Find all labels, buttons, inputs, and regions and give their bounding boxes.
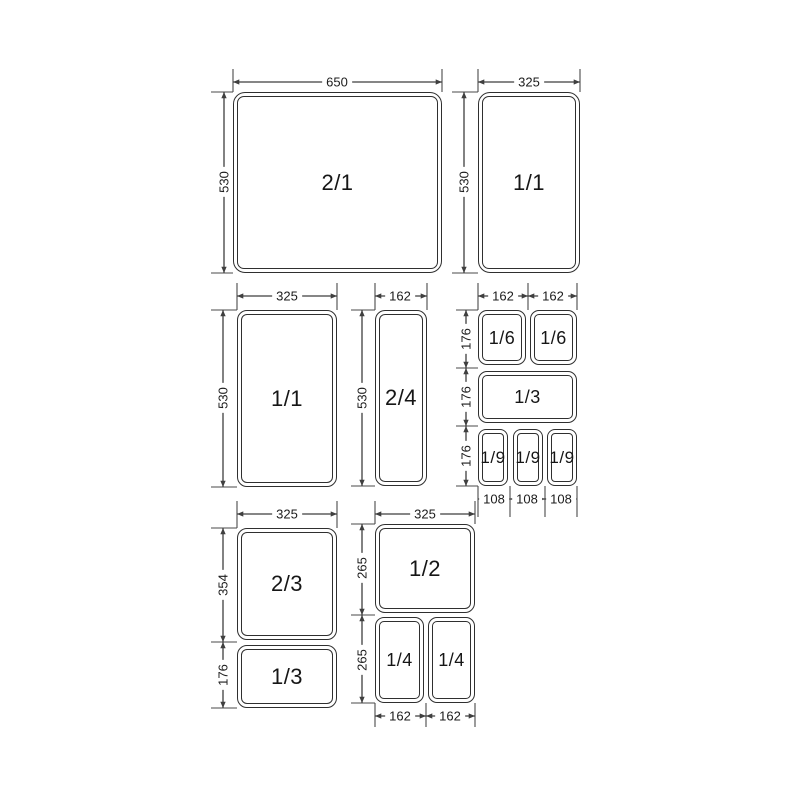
pan-1-9-c-label: 1/9 — [549, 449, 574, 466]
dim-height-1-4: 265 — [355, 645, 370, 675]
pan-1-6-a-label: 1/6 — [489, 329, 516, 347]
dim-height-1-2: 265 — [355, 553, 370, 583]
dim-width-1-9-a: 108 — [479, 492, 509, 507]
dim-height-2-3: 354 — [216, 570, 231, 600]
dim-height-1-1-top: 530 — [457, 167, 472, 197]
pan-1-4-a-label: 1/4 — [386, 651, 413, 669]
pan-2-4-label: 2/4 — [385, 387, 417, 409]
dim-height-1-3-bottom: 176 — [216, 660, 231, 690]
dim-height-row-1-9: 176 — [459, 441, 474, 471]
pan-1-6-b: 1/6 — [530, 310, 577, 365]
pan-1-3-cluster-label: 1/3 — [514, 388, 541, 406]
pan-2-1: 2/1 — [233, 92, 442, 273]
dim-height-2-1: 530 — [217, 167, 232, 197]
gastronorm-size-diagram: 2/1 1/1 1/1 2/4 1/6 1/6 1/3 1/9 1/9 1/9 … — [0, 0, 800, 800]
pan-1-4-a: 1/4 — [375, 617, 424, 703]
pan-1-3-bottom-label: 1/3 — [271, 666, 303, 688]
dim-width-1-2: 325 — [410, 507, 440, 522]
pan-1-1-top-label: 1/1 — [513, 172, 545, 194]
pan-2-4: 2/4 — [375, 310, 427, 486]
pan-1-9-c: 1/9 — [547, 429, 577, 486]
pan-1-3-bottom: 1/3 — [237, 645, 337, 708]
dim-height-2-4: 530 — [355, 383, 370, 413]
pan-1-1-mid-label: 1/1 — [271, 388, 303, 410]
dim-height-row-1-6: 176 — [459, 324, 474, 354]
dim-width-1-4-b: 162 — [435, 709, 465, 724]
dim-height-1-1-mid: 530 — [216, 383, 231, 413]
pan-2-1-label: 2/1 — [321, 172, 353, 194]
dim-width-1-6-a: 162 — [488, 289, 518, 304]
dim-width-1-9-b: 108 — [512, 492, 542, 507]
pan-1-9-b-label: 1/9 — [515, 449, 540, 466]
dim-width-2-4: 162 — [385, 289, 415, 304]
pan-1-9-a: 1/9 — [478, 429, 508, 486]
pan-1-2: 1/2 — [375, 524, 475, 613]
pan-2-3-label: 2/3 — [271, 573, 303, 595]
dim-width-1-1-top: 325 — [514, 75, 544, 90]
pan-1-1-mid: 1/1 — [237, 310, 337, 487]
dim-width-1-9-c: 108 — [546, 492, 576, 507]
pan-1-6-a: 1/6 — [478, 310, 526, 365]
pan-1-9-b: 1/9 — [513, 429, 543, 486]
dim-width-1-1-mid: 325 — [272, 289, 302, 304]
pan-1-6-b-label: 1/6 — [540, 329, 567, 347]
pan-1-9-a-label: 1/9 — [480, 449, 505, 466]
pan-1-4-b-label: 1/4 — [438, 651, 465, 669]
dim-width-1-6-b: 162 — [538, 289, 568, 304]
pan-1-1-top: 1/1 — [478, 92, 580, 273]
dim-width-2-3: 325 — [272, 507, 302, 522]
dim-height-row-1-3: 176 — [459, 382, 474, 412]
dim-width-1-4-a: 162 — [385, 709, 415, 724]
pan-1-2-label: 1/2 — [409, 558, 441, 580]
dim-width-2-1: 650 — [322, 75, 352, 90]
pan-1-3-cluster: 1/3 — [478, 371, 577, 423]
pan-1-4-b: 1/4 — [428, 617, 475, 703]
pan-2-3: 2/3 — [237, 528, 337, 640]
